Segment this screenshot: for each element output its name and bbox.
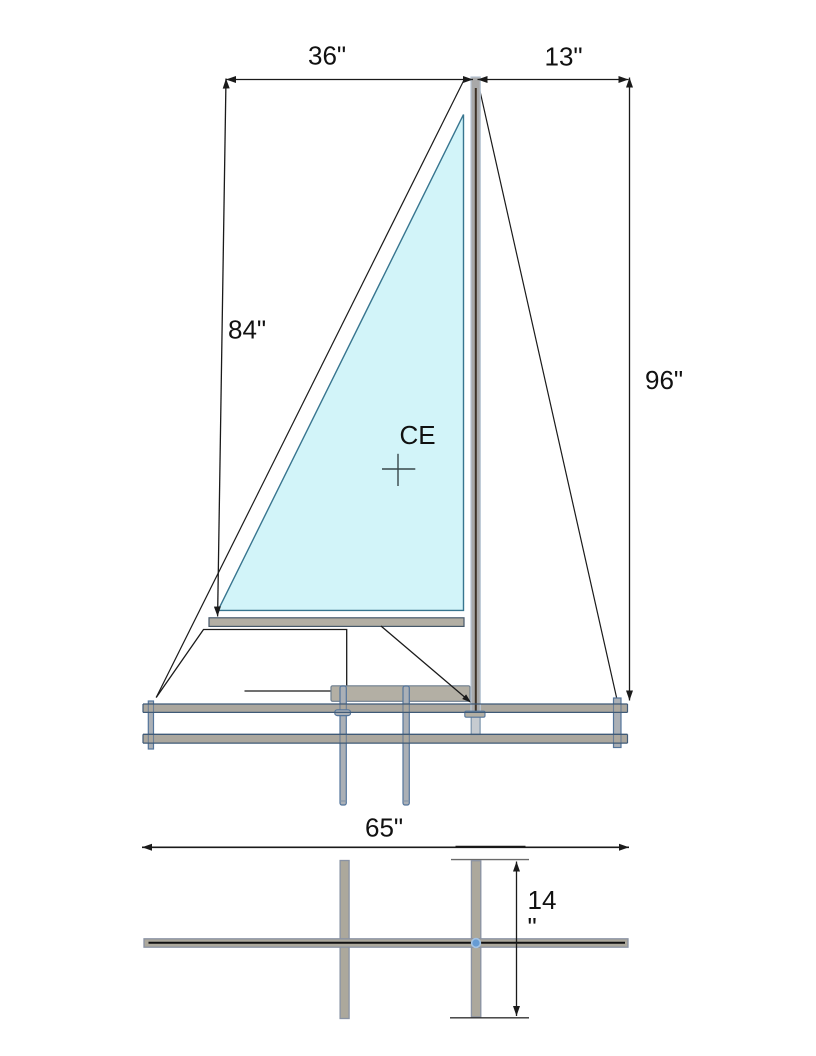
svg-text:36": 36"	[308, 41, 346, 71]
svg-text:": "	[528, 912, 537, 942]
svg-text:CE: CE	[400, 420, 436, 450]
svg-text:84": 84"	[228, 315, 266, 345]
svg-text:96": 96"	[645, 365, 683, 395]
svg-text:65": 65"	[365, 813, 403, 843]
svg-text:14: 14	[528, 885, 557, 915]
svg-text:13": 13"	[545, 42, 583, 72]
